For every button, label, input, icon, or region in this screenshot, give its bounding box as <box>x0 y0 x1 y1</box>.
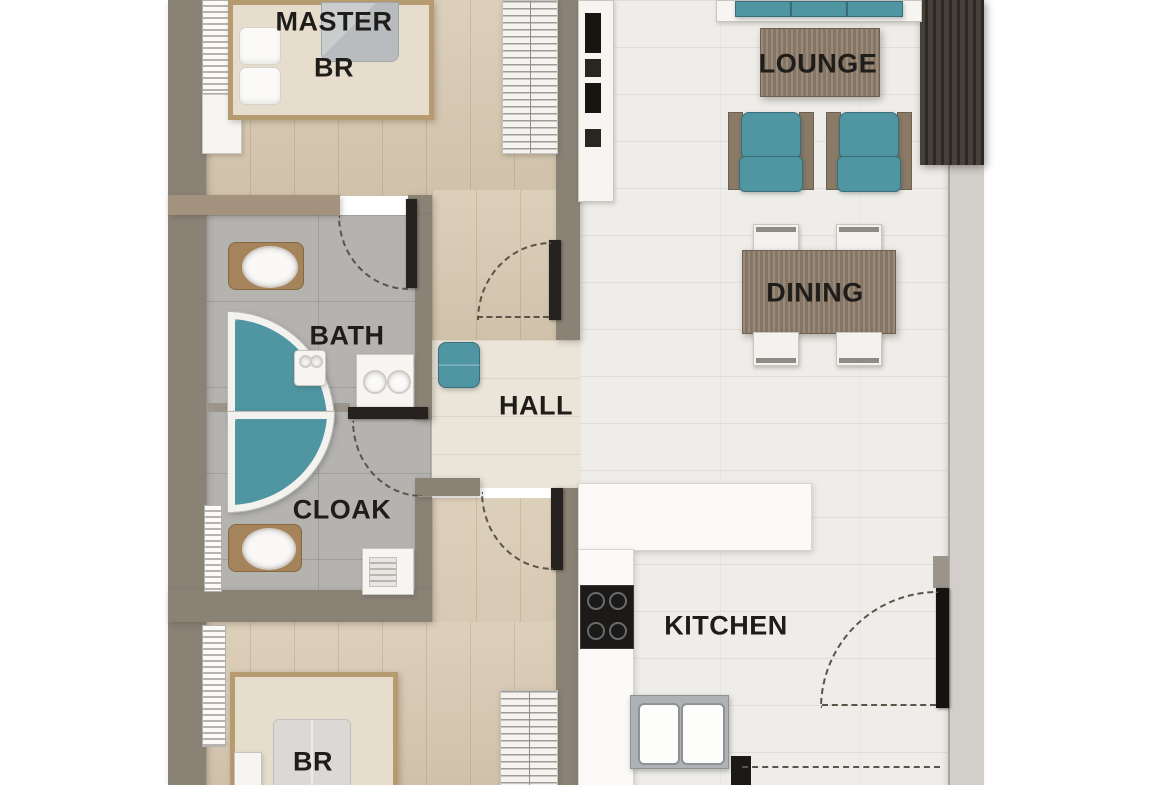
lounge-armchair-right <box>826 110 910 192</box>
master-bed-pillow-2 <box>239 67 281 105</box>
sideboard-decor-4 <box>585 129 601 147</box>
wall-entry-stub <box>933 556 949 588</box>
lounge-media-wall <box>920 0 984 165</box>
room-label-cloak: CLOAK <box>293 495 392 526</box>
armchair-seat-cushion <box>739 156 803 192</box>
wall-hall-bedroom2-stub <box>415 478 480 496</box>
sofa-cushion-3 <box>847 1 903 17</box>
bath-toilet-bowl <box>242 246 298 288</box>
room-label-lounge: LOUNGE <box>759 49 878 80</box>
wall-bath-top <box>168 195 340 215</box>
cloak-cabinet-items <box>369 557 397 587</box>
bath-sink-right <box>387 370 411 394</box>
sideboard-decor-2 <box>585 59 601 77</box>
cloak-radiator <box>204 505 222 592</box>
floor-plan: MASTER BR LOUNGE DINING BATH HALL CLOAK … <box>0 0 1160 785</box>
bath-towel-roll <box>310 355 323 368</box>
room-label-bedroom2: BR <box>293 747 333 778</box>
dining-chair-bottom-left <box>753 332 799 366</box>
master-wardrobe <box>502 0 558 154</box>
kitchen-counter-top <box>578 483 812 551</box>
kitchen-sink-basin-right <box>681 703 725 765</box>
cloak-cabinet <box>362 548 414 595</box>
dining-chair-bottom-right <box>836 332 882 366</box>
kitchen-sink-basin-left <box>638 703 680 765</box>
armchair-back-cushion <box>839 112 899 160</box>
room-label-dining: DINING <box>766 278 864 309</box>
room-label-master-line1: MASTER <box>276 7 393 38</box>
wall-left-outer <box>168 0 206 785</box>
bath-towel-shelf <box>294 350 326 386</box>
bath-sink-left <box>363 370 387 394</box>
sideboard-decor-1 <box>585 13 601 53</box>
kitchen-cooktop <box>580 585 634 649</box>
sofa-cushion-1 <box>735 1 791 17</box>
kitchen-boundary-dashes <box>742 766 940 768</box>
lounge-sideboard <box>578 0 614 202</box>
room-label-master-line2: BR <box>314 53 354 84</box>
bedroom2-nightstand <box>234 752 262 785</box>
room-label-hall: HALL <box>499 391 573 422</box>
bath-vanity <box>356 354 414 408</box>
hall-ottoman <box>438 342 480 388</box>
lounge-sofa <box>716 0 922 22</box>
armchair-seat-cushion <box>837 156 901 192</box>
kitchen-sink-unit <box>630 695 729 769</box>
bedroom2-radiator <box>202 625 226 747</box>
master-door-threshold <box>477 316 549 318</box>
bedroom2-wardrobe <box>500 690 558 785</box>
wall-cloak-right <box>415 497 432 590</box>
cloak-toilet-bowl <box>242 528 296 570</box>
room-label-kitchen: KITCHEN <box>664 611 788 642</box>
sofa-cushion-2 <box>791 1 847 17</box>
entrance-door-threshold <box>822 704 936 706</box>
armchair-back-cushion <box>741 112 801 160</box>
sideboard-decor-3 <box>585 83 601 113</box>
room-label-bath: BATH <box>310 321 385 352</box>
kitchen-dark-fixture <box>731 756 751 785</box>
wall-bath-right <box>415 215 432 420</box>
lounge-armchair-left <box>728 110 812 192</box>
cloak-door-leaf <box>348 407 428 419</box>
